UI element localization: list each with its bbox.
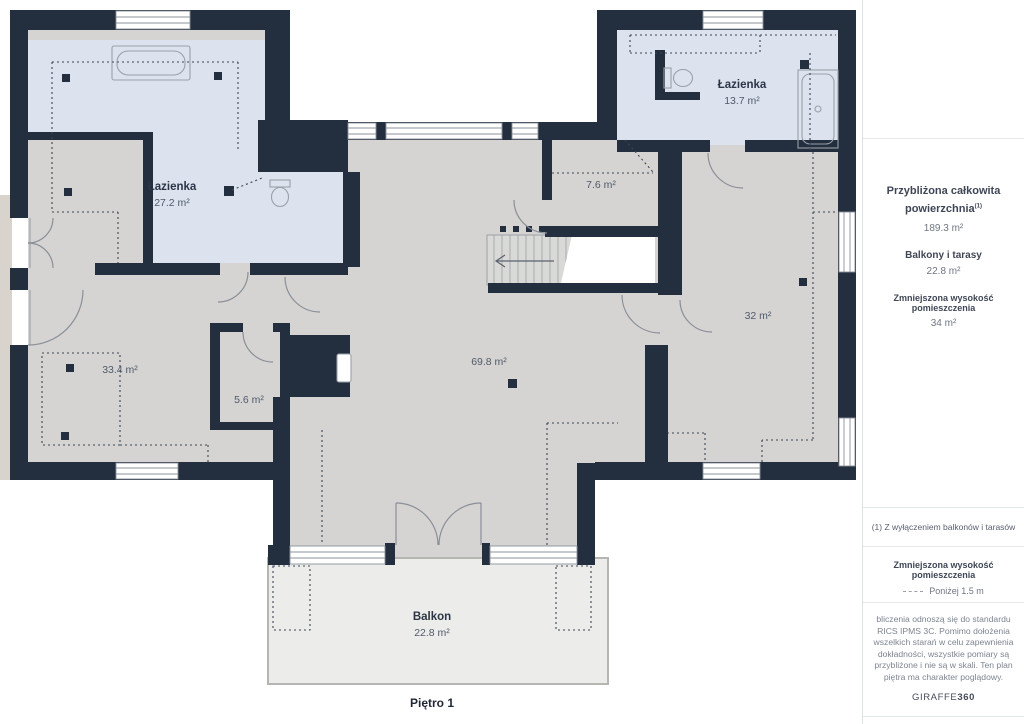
legend-item: Poniżej 1.5 m [863,586,1024,596]
svg-text:22.8 m²: 22.8 m² [414,627,450,639]
disclaimer-text: bliczenia odnoszą się do standardu RICS … [870,614,1018,684]
floor-plan: Łazienka 27.2 m² Łazienka 13.7 m² 7.6 m²… [0,0,862,724]
legend-title: Zmniejszona wysokość pomieszczenia [863,560,1024,580]
svg-text:13.7 m²: 13.7 m² [724,95,760,107]
room-label-334: 33.4 m² [102,364,138,376]
total-area-value: 189.3 m² [863,223,1024,234]
room-label-hall: 7.6 m² [586,179,616,191]
sidebar-footnote: (1) Z wyłączeniem balkonów i tarasów [863,508,1024,547]
stairs-icon [487,235,655,287]
balconies-label: Balkony i tarasy [863,250,1024,261]
sidebar-measurements: Przybliżona całkowita powierzchnia(1) 18… [863,139,1024,508]
svg-text:Łazienka: Łazienka [148,181,197,193]
room-label-living: 69.8 m² [471,356,507,368]
info-sidebar: Przybliżona całkowita powierzchnia(1) 18… [862,0,1024,724]
footnote-marker: (1) [975,203,982,209]
balconies-value: 22.8 m² [863,266,1024,277]
svg-text:27.2 m²: 27.2 m² [154,197,190,209]
svg-text:Balkon: Balkon [413,611,451,623]
sink-icon [337,354,351,382]
room-label-56: 5.6 m² [234,394,264,406]
room-label-32: 32 m² [745,310,772,322]
reduced-height-label: Zmniejszona wysokość pomieszczenia [863,293,1024,313]
floor-title: Piętro 1 [410,696,454,710]
sidebar-empty-top [863,0,1024,139]
brand-logo: GIRAFFE360 [863,692,1024,703]
reduced-height-value: 34 m² [863,318,1024,329]
sidebar-disclaimer: bliczenia odnoszą się do standardu RICS … [863,603,1024,717]
floor-plan-page: Łazienka 27.2 m² Łazienka 13.7 m² 7.6 m²… [0,0,1024,724]
total-area-title: Przybliżona całkowita powierzchnia(1) [863,183,1024,218]
sidebar-legend: Zmniejszona wysokość pomieszczenia Poniż… [863,547,1024,603]
dashed-line-icon [903,591,923,592]
svg-text:Łazienka: Łazienka [718,79,767,91]
